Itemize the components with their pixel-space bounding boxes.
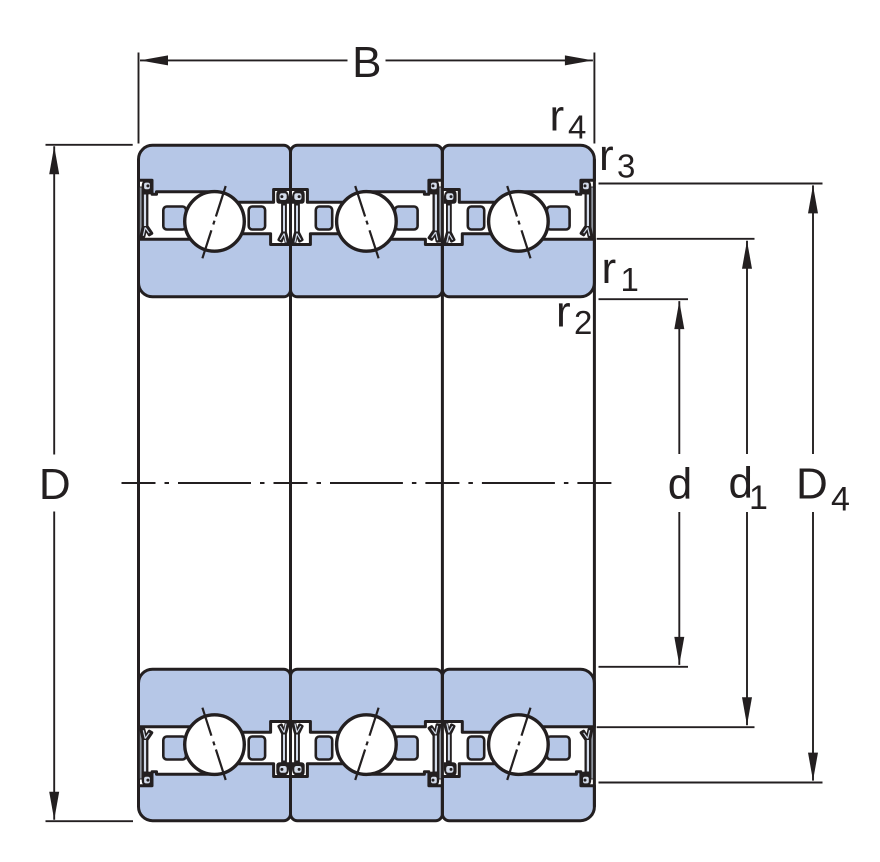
svg-text:1: 1	[749, 479, 768, 517]
svg-text:r: r	[599, 131, 614, 180]
svg-text:r: r	[556, 288, 571, 337]
svg-text:D: D	[39, 460, 71, 509]
svg-text:D: D	[796, 460, 828, 509]
svg-text:2: 2	[574, 304, 592, 341]
svg-text:4: 4	[831, 481, 850, 519]
svg-text:r: r	[602, 244, 617, 293]
svg-text:r: r	[550, 92, 565, 141]
svg-text:1: 1	[621, 261, 639, 298]
svg-text:B: B	[352, 38, 381, 87]
svg-text:4: 4	[568, 109, 586, 146]
svg-text:3: 3	[617, 147, 635, 184]
svg-text:d: d	[668, 460, 692, 509]
